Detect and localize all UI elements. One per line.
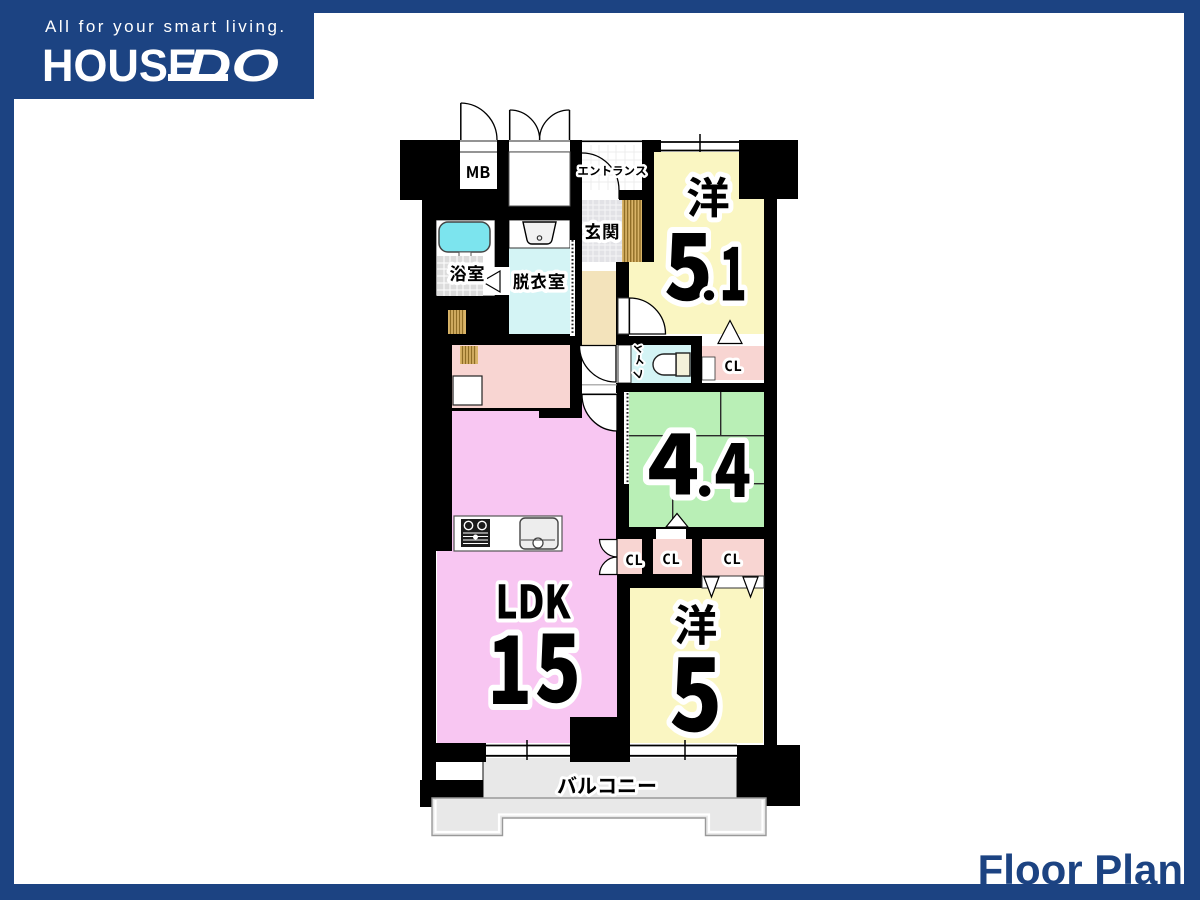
svg-text:All for your smart living.: All for your smart living.	[45, 17, 287, 36]
svg-text:Floor Plan: Floor Plan	[978, 846, 1183, 893]
svg-text:HOUSE: HOUSE	[42, 40, 197, 91]
svg-text:DO: DO	[187, 40, 279, 91]
